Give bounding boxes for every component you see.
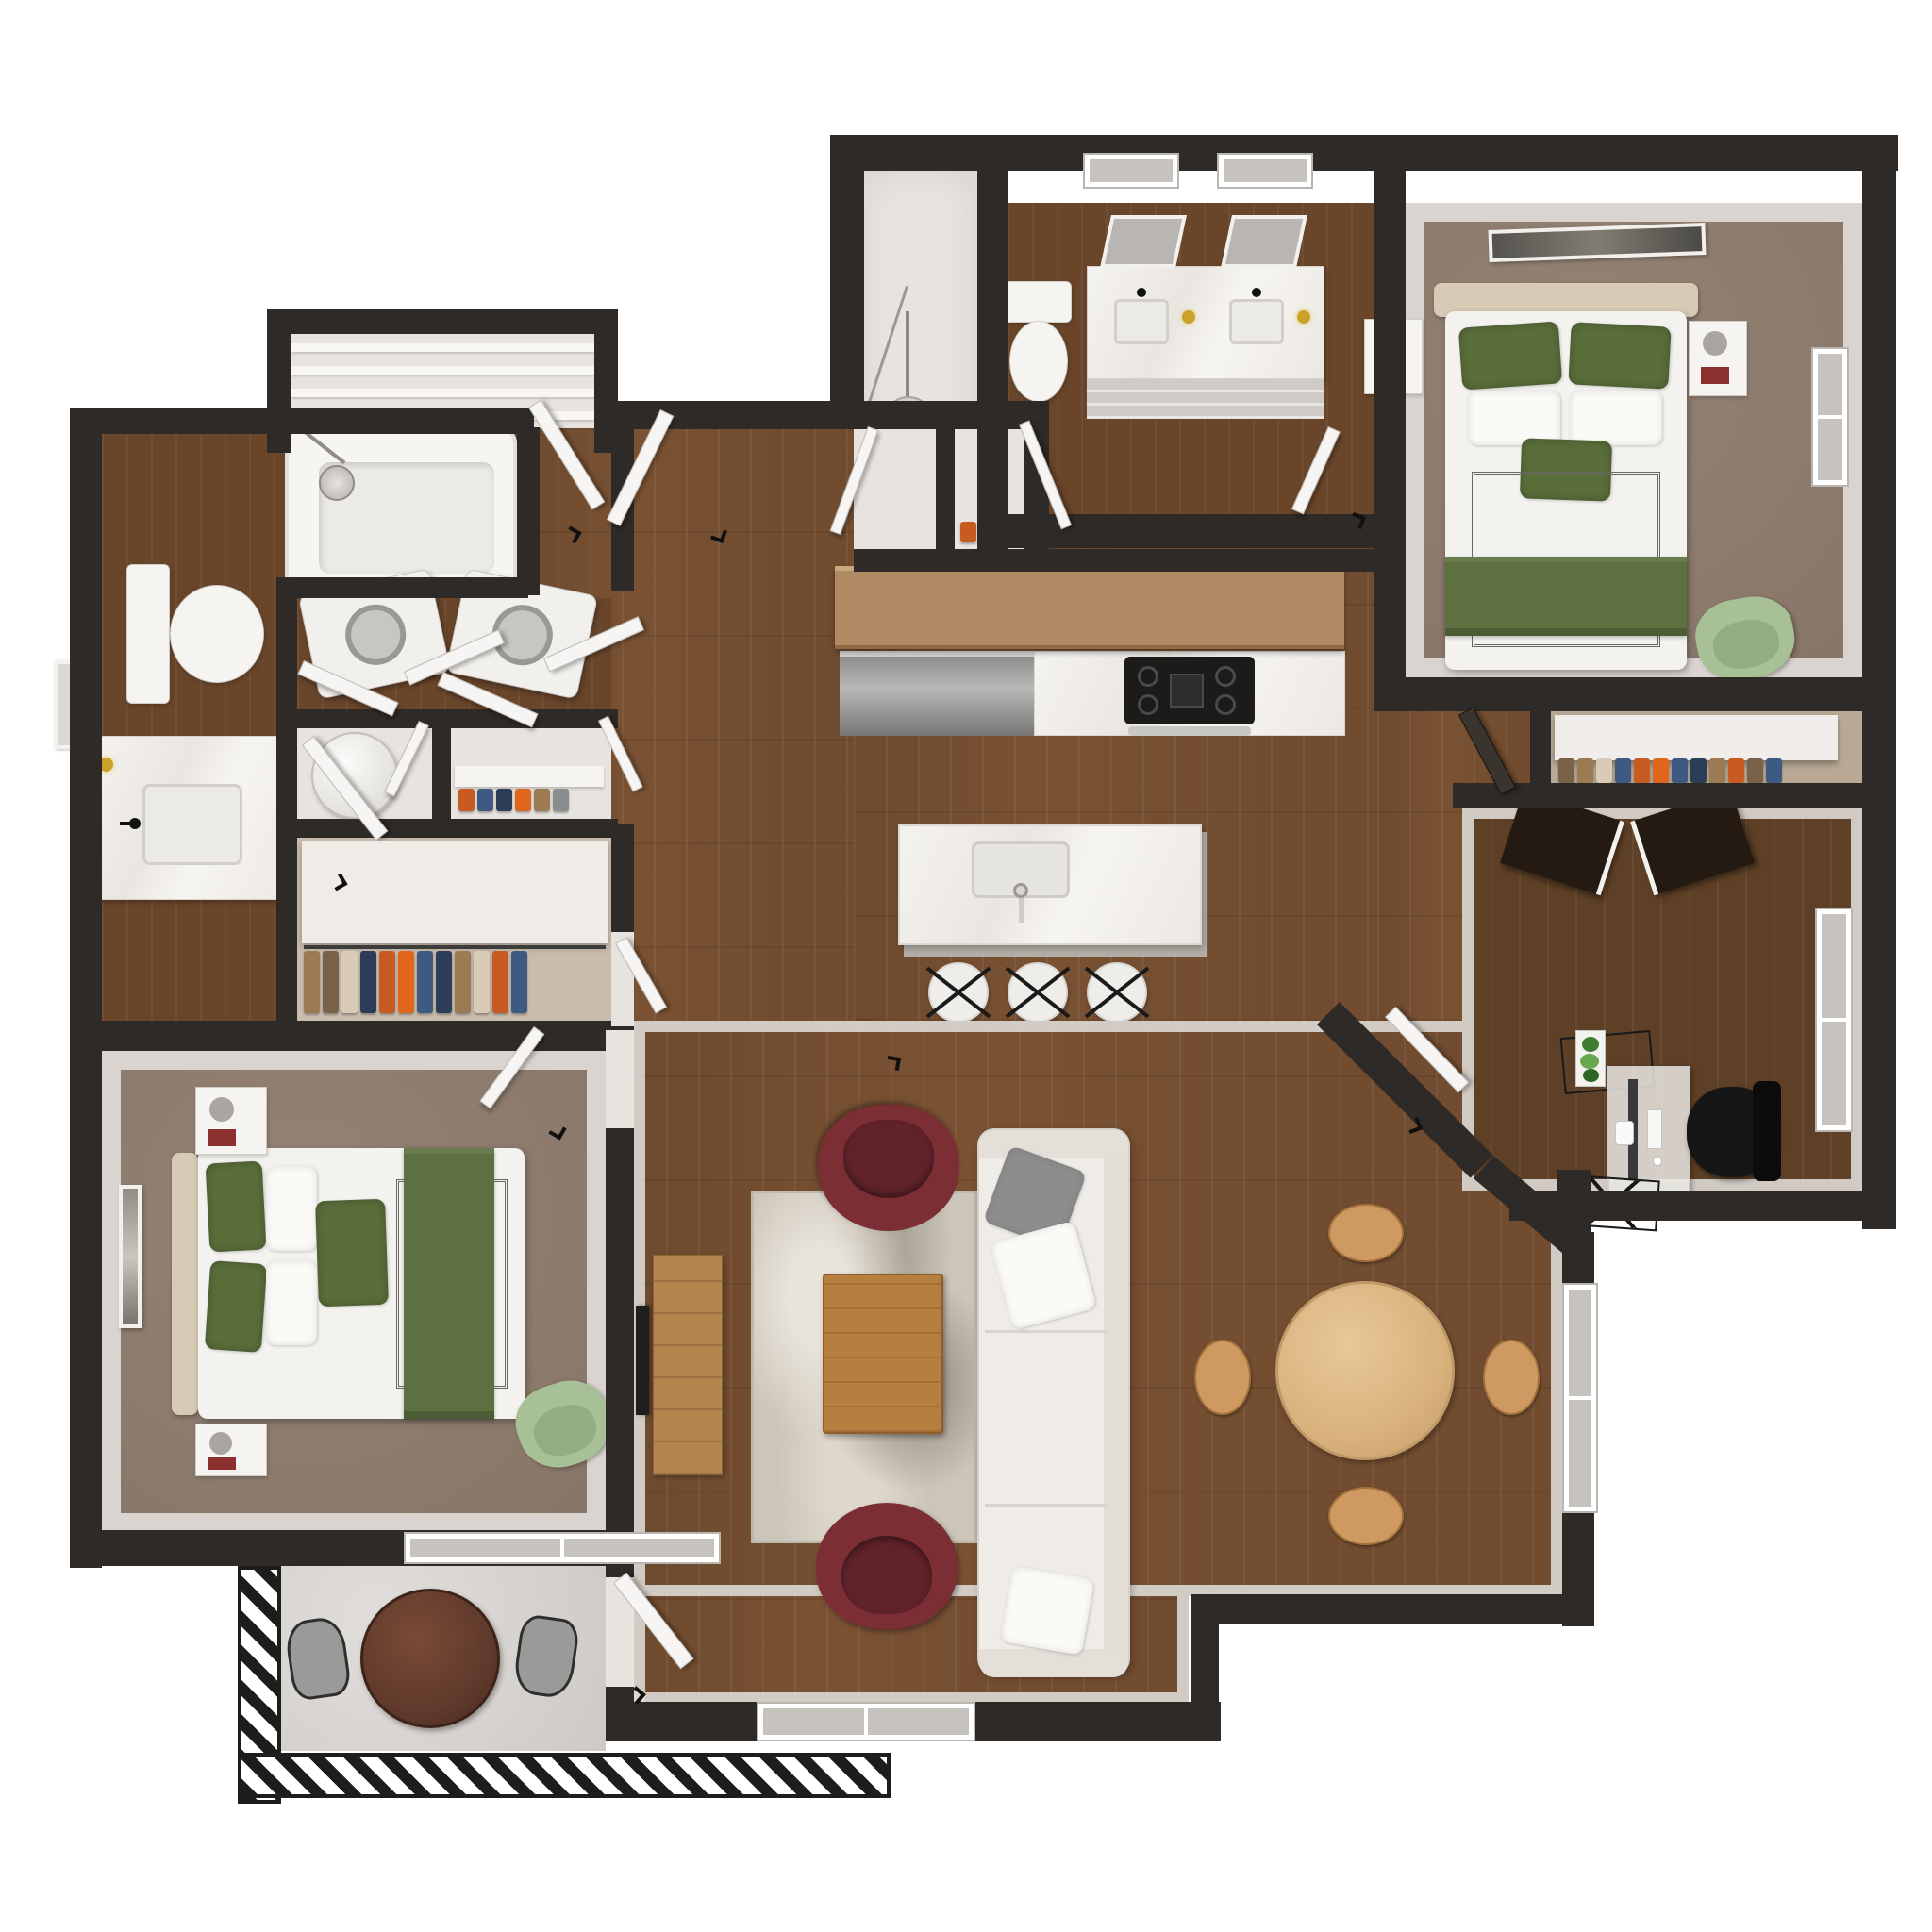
closet-shelf	[1555, 715, 1838, 760]
wall	[432, 709, 451, 824]
burgundy-swivel-chair	[818, 1105, 959, 1231]
door-gap	[606, 1030, 634, 1128]
wall	[1191, 1594, 1594, 1624]
wall	[276, 577, 297, 1051]
closet-shelving	[302, 841, 608, 943]
kitchen-island	[898, 824, 1202, 945]
patio-chair	[283, 1615, 352, 1702]
sofa	[977, 1128, 1130, 1675]
wall	[1530, 711, 1551, 789]
bathroom-window	[1219, 155, 1311, 187]
hanging-clothes	[1558, 758, 1841, 783]
black-faucet	[1137, 288, 1146, 297]
wall	[936, 415, 955, 555]
shelf-line	[291, 343, 594, 352]
white-pillow	[1468, 391, 1560, 445]
dining-table	[1275, 1281, 1455, 1460]
white-pillow	[266, 1260, 317, 1345]
wall	[1374, 677, 1896, 711]
gold-sconce	[1297, 310, 1310, 324]
wall	[830, 135, 864, 418]
toilet-bowl	[1009, 321, 1068, 402]
wall	[830, 135, 1898, 171]
balcony-railing	[238, 1753, 891, 1798]
double-vanity	[1087, 266, 1324, 379]
vanity-mirror	[1221, 215, 1307, 268]
green-pillow	[206, 1160, 267, 1252]
dining-chair	[1328, 1487, 1404, 1545]
room-balcony	[281, 1566, 606, 1751]
sofa-pillow	[990, 1221, 1097, 1331]
wall	[70, 408, 102, 1568]
window	[758, 1704, 974, 1740]
sofa-pillow	[1000, 1565, 1095, 1656]
toilet-tank	[1002, 281, 1072, 323]
floor-lamp-arc	[868, 286, 908, 404]
dining-chair	[1483, 1340, 1540, 1415]
clothes-rod	[304, 945, 606, 949]
floor-plan-canvas	[0, 0, 1932, 1932]
mini-pc	[1615, 1121, 1634, 1145]
shelf-line	[291, 366, 594, 375]
bathroom-window	[1085, 155, 1177, 187]
toilet-tank	[126, 564, 170, 704]
shower-head	[319, 465, 355, 501]
island-faucet-stem	[1019, 898, 1024, 923]
coffee-table	[823, 1274, 943, 1434]
dining-chair	[1328, 1204, 1404, 1262]
room-suite-closet	[1551, 711, 1862, 785]
toilet-bowl	[170, 585, 264, 683]
wall	[83, 408, 534, 434]
wall	[854, 549, 1379, 572]
mouse	[1653, 1157, 1662, 1166]
nightstand	[195, 1424, 267, 1476]
patio-chair	[511, 1613, 580, 1700]
nightstand	[1689, 321, 1747, 396]
breakfast-bar	[835, 566, 1344, 649]
room-master-bedroom	[1406, 203, 1862, 677]
green-pillow	[1568, 322, 1671, 389]
window	[1564, 1285, 1596, 1511]
wall	[1509, 1191, 1868, 1221]
green-throw-blanket	[1445, 557, 1687, 636]
wall-art	[1488, 223, 1706, 262]
planter-box	[1575, 1030, 1606, 1087]
green-accent-pillow	[315, 1199, 389, 1307]
shoes-row	[458, 789, 608, 811]
green-pillow	[1458, 321, 1562, 390]
dishwasher	[840, 651, 1034, 736]
burgundy-swivel-chair	[816, 1503, 958, 1629]
bistro-table	[360, 1589, 500, 1728]
window-balcony-sill	[406, 1534, 719, 1562]
wall-art	[119, 1185, 142, 1328]
room-kitchen	[854, 549, 1406, 1021]
room-walkin-closet	[297, 838, 611, 1021]
office-chair-back	[1753, 1081, 1781, 1181]
green-runner-blanket	[404, 1148, 494, 1419]
hanging-clothes	[304, 951, 609, 1013]
dining-chair	[1194, 1340, 1251, 1415]
bath-tile-runner	[1087, 379, 1324, 419]
black-faucet-stem	[120, 822, 133, 825]
room-office	[1462, 808, 1862, 1191]
nightstand	[195, 1087, 267, 1155]
window	[1817, 909, 1851, 1130]
vanity	[91, 736, 296, 900]
room-second-bedroom	[102, 1051, 606, 1532]
vanity-sink	[1114, 299, 1169, 344]
gold-sconce	[1182, 310, 1195, 324]
wall	[278, 577, 528, 598]
wall	[977, 171, 1008, 550]
wall	[278, 819, 618, 838]
island-faucet	[1013, 883, 1028, 898]
keyboard	[1647, 1109, 1662, 1149]
wall	[1374, 171, 1406, 711]
shoe-shelf	[455, 766, 604, 787]
oven-handle	[1128, 726, 1251, 736]
shelf-line	[291, 389, 594, 397]
white-pillow	[1570, 391, 1662, 445]
room-shoe-closet	[451, 728, 611, 819]
wall	[267, 309, 618, 334]
wall	[517, 427, 540, 595]
black-faucet	[1252, 288, 1261, 297]
cooktop	[1124, 657, 1255, 724]
vanity-sink	[142, 784, 242, 865]
vanity-mirror	[1100, 215, 1187, 268]
bed-headboard	[172, 1153, 198, 1415]
white-pillow	[266, 1166, 317, 1251]
vanity-sink	[1229, 299, 1284, 344]
window	[1813, 349, 1847, 485]
television	[636, 1306, 649, 1415]
green-armchair	[1690, 591, 1800, 688]
door-hinge-mark	[886, 1056, 901, 1071]
wall	[83, 1021, 630, 1051]
green-pillow	[205, 1260, 267, 1353]
tv-console	[653, 1255, 723, 1475]
floor-lamp-stem	[906, 311, 909, 409]
